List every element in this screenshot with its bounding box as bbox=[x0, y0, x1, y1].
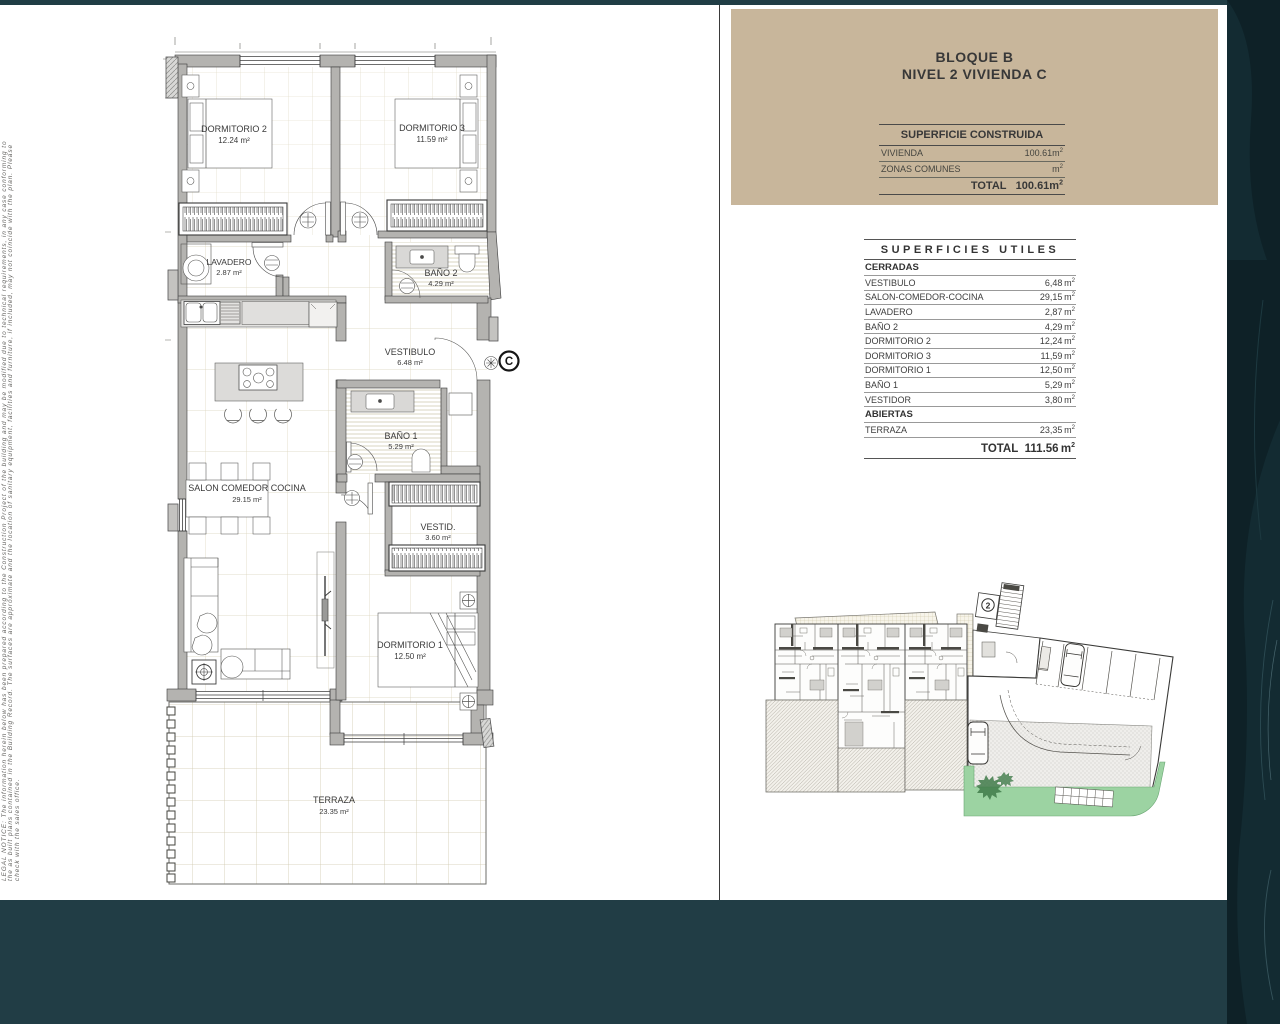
svg-text:29.15 m²: 29.15 m² bbox=[232, 495, 262, 504]
svg-text:VESTIBULO: VESTIBULO bbox=[385, 347, 436, 357]
svg-text:6.48 m²: 6.48 m² bbox=[397, 358, 423, 367]
svg-text:C: C bbox=[505, 356, 513, 368]
svg-text:4.29 m²: 4.29 m² bbox=[428, 279, 454, 288]
svg-text:23.35 m²: 23.35 m² bbox=[319, 807, 349, 816]
svg-text:LAVADERO: LAVADERO bbox=[206, 257, 251, 267]
svg-text:DORMITORIO 3: DORMITORIO 3 bbox=[399, 123, 465, 133]
svg-text:11.59 m²: 11.59 m² bbox=[417, 135, 448, 144]
svg-text:DORMITORIO 2: DORMITORIO 2 bbox=[201, 124, 267, 134]
svg-text:BAÑO 2: BAÑO 2 bbox=[424, 268, 457, 278]
svg-text:2.87 m²: 2.87 m² bbox=[216, 268, 242, 277]
svg-text:VESTID.: VESTID. bbox=[420, 522, 455, 532]
svg-text:DORMITORIO 1: DORMITORIO 1 bbox=[377, 640, 443, 650]
svg-text:12.50 m²: 12.50 m² bbox=[394, 652, 426, 661]
svg-text:5.29 m²: 5.29 m² bbox=[388, 442, 414, 451]
svg-text:SALON COMEDOR COCINA: SALON COMEDOR COCINA bbox=[188, 483, 306, 493]
svg-text:BAÑO 1: BAÑO 1 bbox=[384, 431, 417, 441]
svg-text:3.60 m²: 3.60 m² bbox=[425, 533, 451, 542]
svg-text:12.24 m²: 12.24 m² bbox=[218, 136, 250, 145]
svg-text:TERRAZA: TERRAZA bbox=[313, 795, 355, 805]
svg-text:2: 2 bbox=[986, 601, 991, 611]
